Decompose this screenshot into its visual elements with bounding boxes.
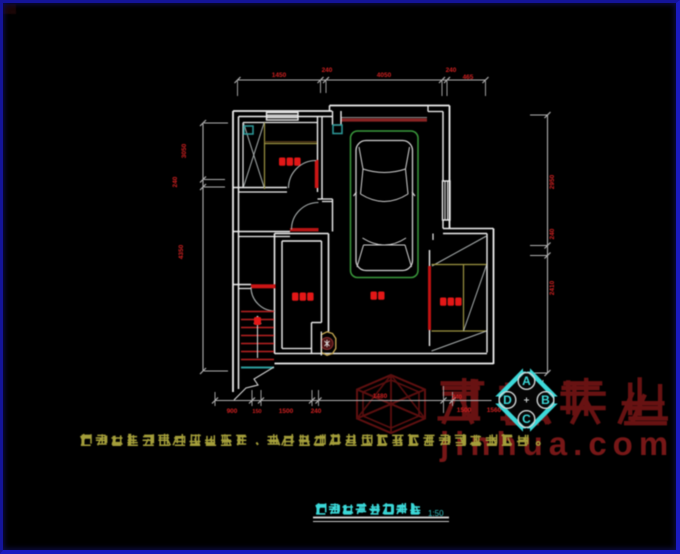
svg-text:B: B	[541, 393, 550, 407]
svg-text:1500: 1500	[457, 407, 472, 414]
svg-text:240: 240	[322, 67, 333, 74]
svg-text:D: D	[503, 393, 512, 407]
svg-text:240: 240	[172, 176, 179, 187]
svg-text:4350: 4350	[178, 244, 185, 259]
svg-text:3050: 3050	[181, 143, 188, 158]
svg-text:240: 240	[311, 408, 322, 415]
svg-text:900: 900	[227, 408, 238, 415]
svg-text:240: 240	[549, 228, 556, 239]
svg-text:A: A	[522, 374, 531, 388]
svg-text:465: 465	[463, 74, 474, 81]
svg-text:240: 240	[446, 67, 457, 74]
svg-text:C: C	[522, 412, 531, 426]
svg-text:240: 240	[452, 395, 463, 401]
svg-text:1450: 1450	[272, 72, 287, 79]
svg-text:1500: 1500	[279, 408, 294, 415]
svg-text:1560: 1560	[487, 407, 502, 414]
svg-text:1480: 1480	[373, 393, 388, 400]
svg-text:2950: 2950	[549, 174, 556, 189]
svg-text:4050: 4050	[377, 72, 392, 79]
svg-text:2410: 2410	[549, 280, 556, 295]
svg-text:150: 150	[252, 409, 261, 415]
